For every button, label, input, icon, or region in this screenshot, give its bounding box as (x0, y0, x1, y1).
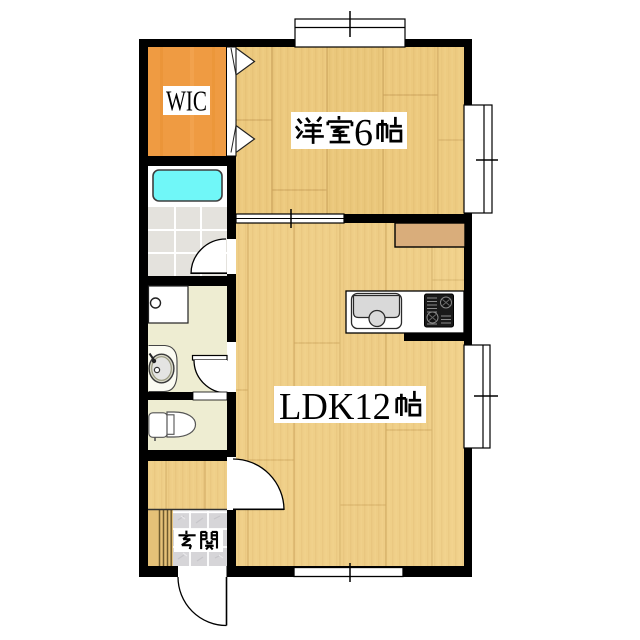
svg-text:WIC: WIC (166, 87, 207, 118)
svg-text:LDK12: LDK12 (279, 386, 391, 428)
svg-text:6: 6 (354, 112, 373, 154)
